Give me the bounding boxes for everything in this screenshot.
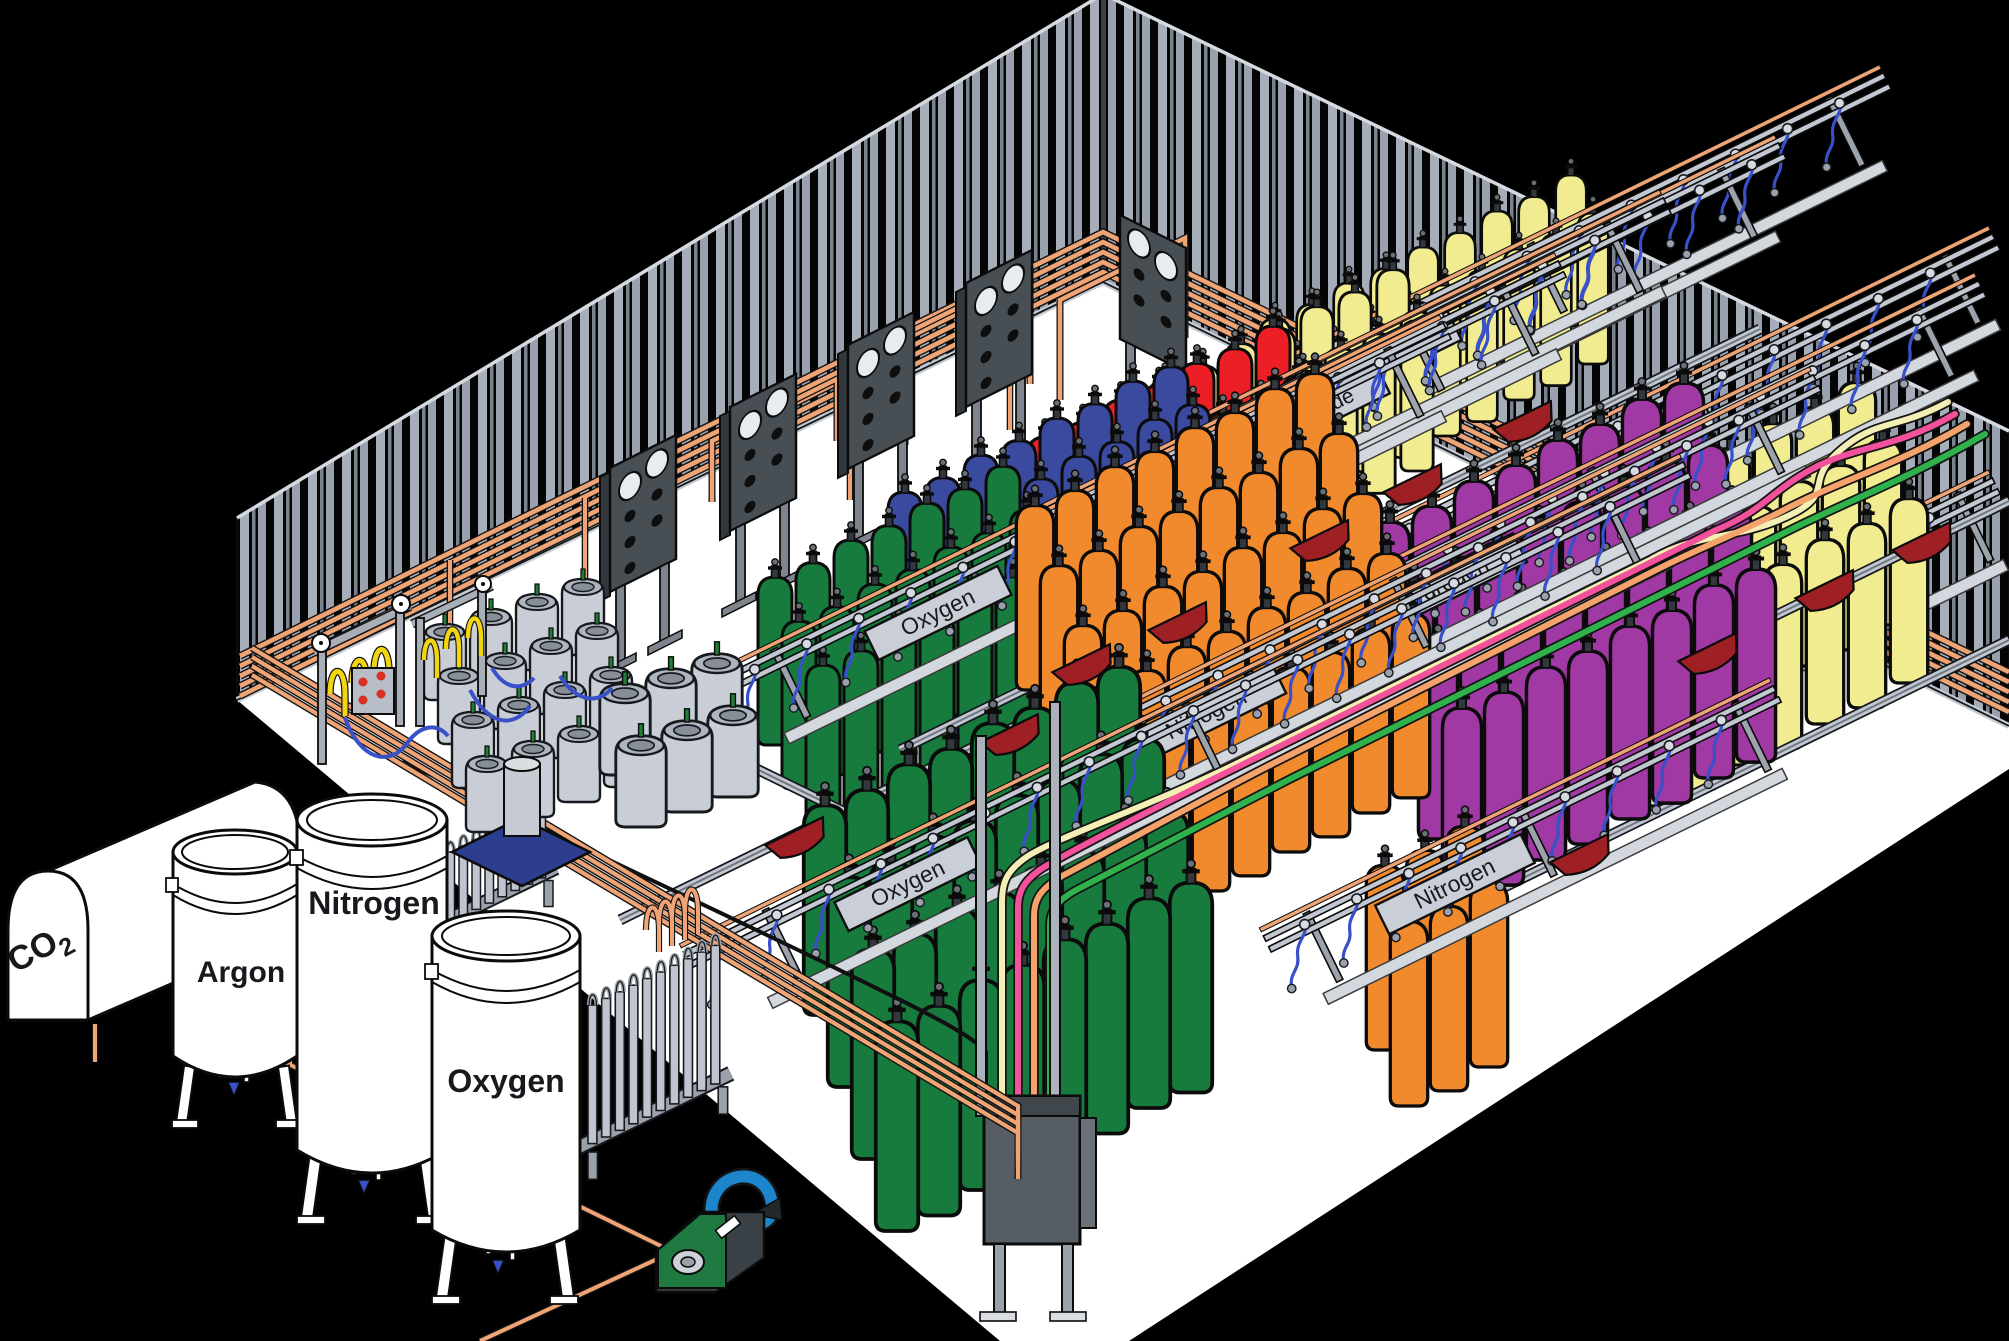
liquid-dewar <box>558 716 600 802</box>
gas-cylinder <box>1848 503 1885 708</box>
liquid-dewar <box>708 694 758 797</box>
tank-label-argon: Argon <box>197 956 285 989</box>
gas-cylinder <box>1736 548 1775 762</box>
gas-cylinder <box>1086 901 1129 1134</box>
gas-cylinder <box>1890 478 1927 683</box>
storage-tank-oxygen: Oxygen <box>425 911 580 1304</box>
gas-cylinder <box>1610 605 1649 819</box>
support-post <box>1050 702 1060 1116</box>
liquid-dewar <box>662 709 712 812</box>
gas-cylinder <box>1568 630 1607 844</box>
gas-cylinder <box>1170 860 1213 1093</box>
liquid-dewar <box>616 724 666 827</box>
gas-cylinder <box>1652 589 1691 803</box>
storage-tank-nitrogen: Nitrogen <box>290 794 447 1224</box>
gas-cylinder <box>1128 875 1171 1108</box>
gas-filling-plant-illustration: ArgonCarbon DioxideHeliumNitrogenOxygenA… <box>0 0 2009 1341</box>
storage-tank-argon: Argon <box>166 830 302 1128</box>
alarm-box <box>352 668 394 714</box>
gas-cylinder <box>1430 886 1467 1091</box>
tank-label-oxygen: Oxygen <box>447 1063 564 1099</box>
liquid-dewar <box>466 746 508 832</box>
tank-label-nitrogen: Nitrogen <box>308 885 440 921</box>
gas-cylinder <box>918 983 961 1216</box>
support-post <box>976 736 986 1116</box>
gas-cylinder <box>1806 519 1843 724</box>
